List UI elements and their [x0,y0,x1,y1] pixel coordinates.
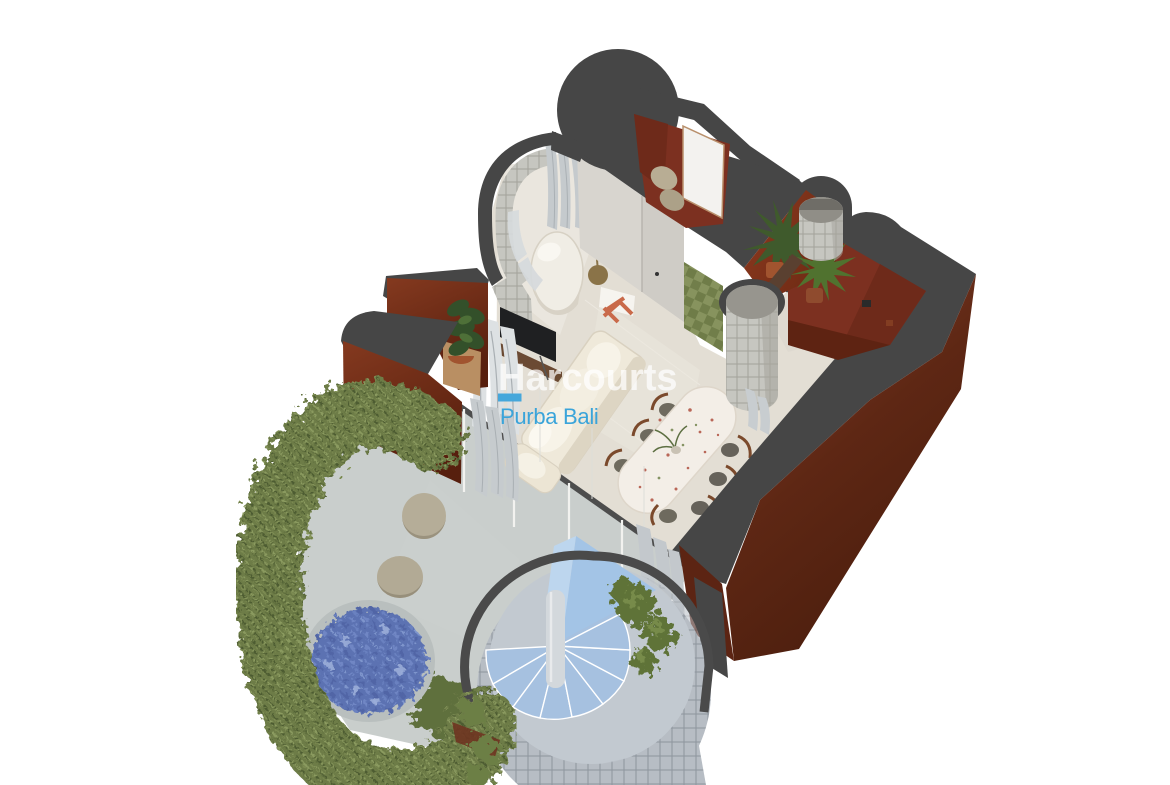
svg-text:Harcourts: Harcourts [498,357,678,399]
svg-text:Purba Bali: Purba Bali [500,404,599,429]
